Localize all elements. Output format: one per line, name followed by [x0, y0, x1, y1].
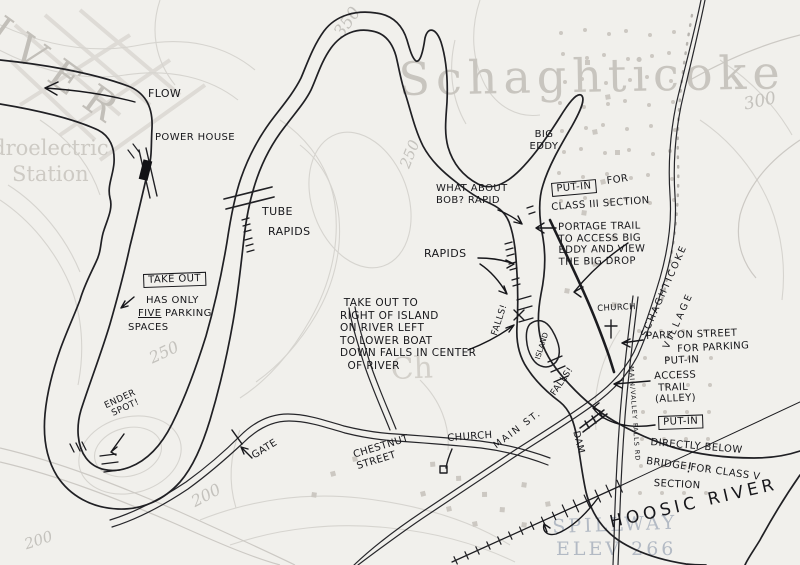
power-house-label: POWER HOUSE: [155, 132, 235, 144]
take-out-parking: PARKING: [161, 308, 211, 319]
what-about-bob-label: WHAT ABOUT BOB? RAPID: [436, 183, 508, 206]
putin-class5-box-label: PUT-IN: [658, 414, 703, 429]
take-out-note-line2: FIVE PARKING: [138, 308, 212, 320]
tube-rapids-label: RAPIDS: [268, 226, 310, 239]
take-out-note-line1: HAS ONLY: [146, 295, 199, 307]
portage-note-label: PORTAGE TRAIL TO ACCESS BIG EDDY AND VIE…: [558, 220, 646, 268]
island-takeout-note-label: TAKE OUT TO RIGHT OF ISLAND ON RIVER LEF…: [340, 297, 476, 373]
tube-label: TUBE: [262, 206, 293, 219]
church-upper-label: CHURCH: [597, 303, 636, 315]
take-out-box-label: TAKE OUT: [143, 272, 206, 288]
putin-class5-line3: SECTION: [653, 478, 700, 492]
park-on-street-line3: PUT-IN: [664, 354, 700, 367]
power-house-icon: [128, 144, 157, 198]
flow-label: FLOW: [148, 88, 181, 101]
hand-annotated-topo-map: RIVER Schaghticoke Hydroelectric Station…: [0, 0, 800, 565]
access-trail-label: ACCESS TRAIL (ALLEY): [654, 370, 697, 406]
rapids-label: RAPIDS: [424, 248, 466, 261]
takeout-x-mark: [514, 310, 524, 320]
take-out-note-line3: SPACES: [128, 322, 168, 334]
take-out-five: FIVE: [138, 308, 161, 319]
big-eddy-label: BIG EDDY: [521, 129, 567, 152]
